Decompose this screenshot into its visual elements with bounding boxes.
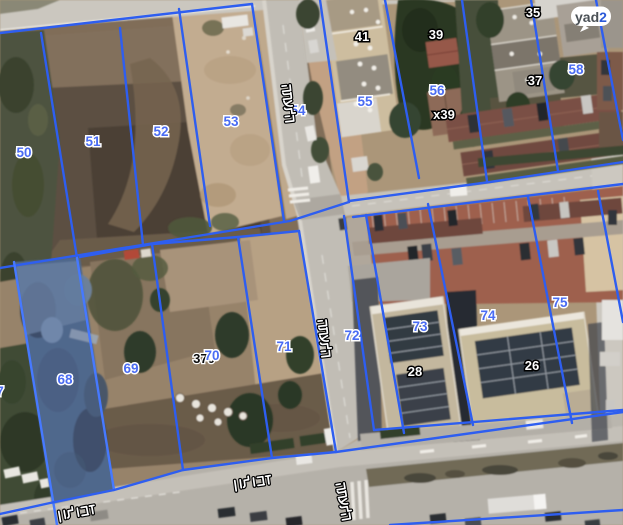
svg-text:50: 50 (16, 145, 31, 160)
svg-text:72: 72 (344, 328, 359, 343)
svg-text:39: 39 (429, 27, 443, 42)
svg-text:41: 41 (355, 29, 369, 44)
svg-text:37: 37 (528, 73, 542, 88)
svg-text:35: 35 (526, 5, 540, 20)
svg-text:58: 58 (568, 62, 584, 77)
svg-text:53: 53 (223, 114, 239, 129)
svg-text:yad2: yad2 (575, 9, 607, 25)
svg-text:69: 69 (123, 361, 138, 376)
svg-text:28: 28 (408, 364, 422, 379)
svg-text:70: 70 (204, 348, 219, 363)
svg-text:x39: x39 (433, 107, 455, 122)
svg-text:55: 55 (357, 94, 373, 109)
svg-text:73: 73 (412, 319, 428, 334)
svg-text:52: 52 (153, 124, 168, 139)
svg-text:74: 74 (480, 308, 496, 323)
svg-text:51: 51 (85, 134, 101, 149)
svg-text:75: 75 (552, 295, 568, 310)
svg-text:7: 7 (0, 384, 4, 399)
svg-text:26: 26 (525, 358, 539, 373)
svg-text:56: 56 (429, 83, 445, 98)
svg-text:71: 71 (276, 339, 292, 354)
svg-text:68: 68 (57, 372, 73, 387)
